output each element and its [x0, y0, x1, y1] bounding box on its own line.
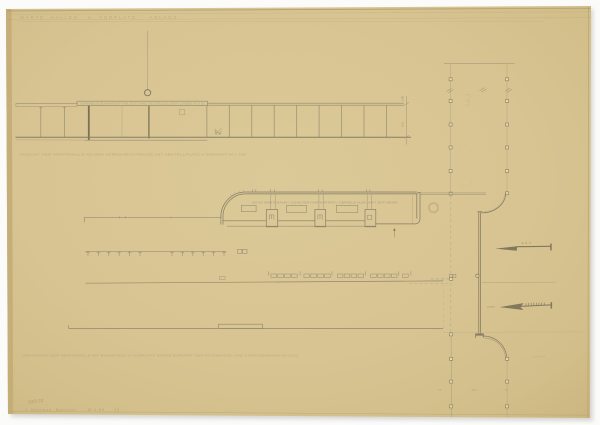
svg-text:KIOSK WARTERAUM I SCHALTER FAH: KIOSK WARTERAUM I SCHALTER FAHRKARTEN U …: [252, 201, 398, 205]
svg-text:ANSICHT DER WARTEHALLE AN DER: ANSICHT DER WARTEHALLE AN DER VERKEHRSST…: [19, 153, 247, 157]
svg-text:0.30: 0.30: [401, 95, 405, 101]
svg-text:3.10: 3.10: [401, 121, 405, 127]
svg-text:7,5: 7,5: [505, 389, 509, 392]
svg-text:7,5: 7,5: [438, 389, 442, 392]
svg-text:3 0 !I: 3 0 !I: [522, 241, 532, 245]
svg-text:OMNIBUS BAHNHOF AM ZOO HALTEST: OMNIBUS BAHNHOF AM ZOO HALTESTELLE DER L…: [80, 102, 204, 106]
svg-text:13,0: 13,0: [472, 389, 477, 392]
svg-text:WARTEHALLENUVORPLATZANLAGE: WARTEHALLENUVORPLATZANLAGE: [20, 15, 178, 20]
svg-text:GRUNDRISS DER WARTEHALLE MIT B: GRUNDRISS DER WARTEHALLE MIT BAHNSTEIG U…: [22, 353, 299, 357]
